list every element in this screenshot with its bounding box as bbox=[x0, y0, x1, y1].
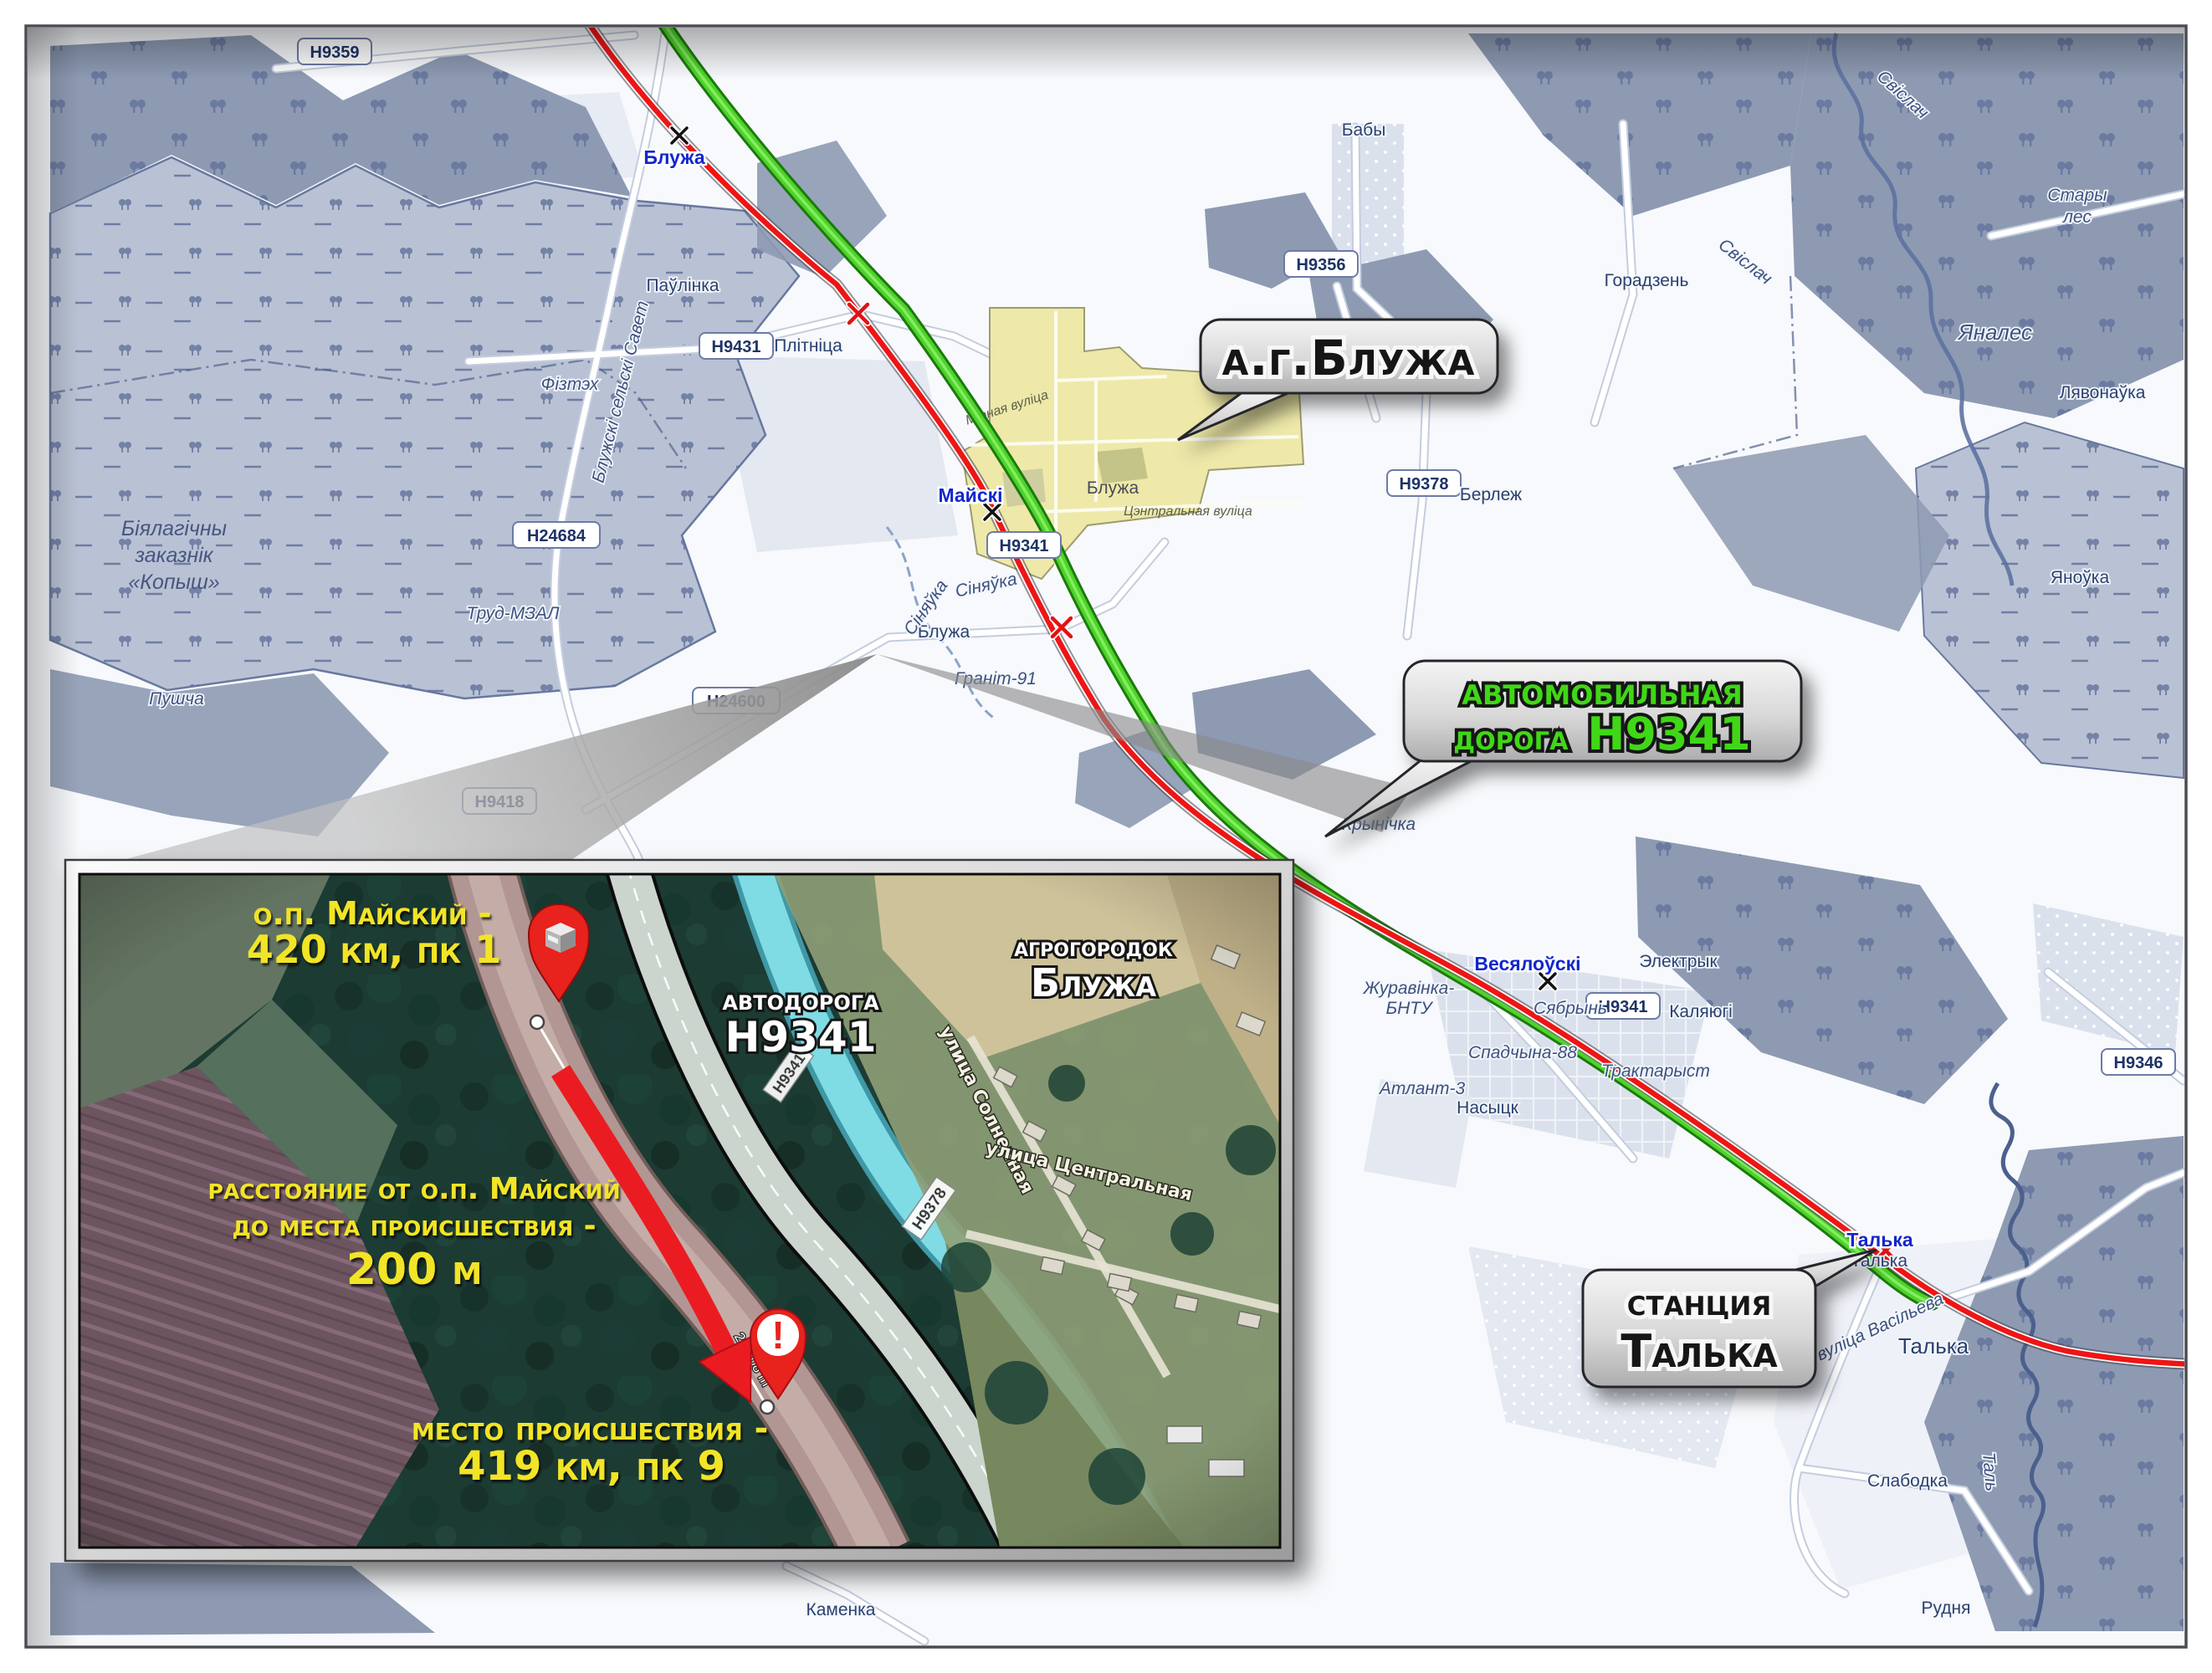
street-label-tsentralnaya: Цэнтральная вуліца bbox=[1124, 504, 1252, 519]
svg-text:Н24684: Н24684 bbox=[527, 527, 586, 545]
label-lyavonauka: Лявонаўка bbox=[2060, 383, 2146, 402]
label-paulinka: Паўлінка bbox=[646, 276, 719, 295]
svg-text:Н9378: Н9378 bbox=[1400, 475, 1449, 494]
label-zhuravinka-2: БНТУ bbox=[1385, 999, 1434, 1018]
svg-text:Н9341: Н9341 bbox=[1000, 537, 1049, 555]
label-bluzha-village: Блужа bbox=[918, 622, 970, 642]
label-stary-les-1: Стары bbox=[2047, 186, 2107, 205]
svg-text:заказнік: заказнік bbox=[134, 544, 213, 567]
label-spadchyna: Спадчына-88 bbox=[1468, 1043, 1577, 1062]
svg-text:Біялагічны: Біялагічны bbox=[121, 517, 227, 540]
map-screenshot: Мірная вуліца Блужа Цэнтральная вуліца Н… bbox=[0, 0, 2212, 1673]
river-label-tal: Таль bbox=[1979, 1451, 2001, 1492]
inset-satellite: 209.08 m Н9341 Н9378 улица Солнечная ули… bbox=[65, 860, 1293, 1561]
label-slabodka: Слабодка bbox=[1867, 1471, 1948, 1491]
label-kamenka: Каменка bbox=[806, 1600, 876, 1619]
callout-bluzha-text: а.г.Блужа bbox=[1222, 330, 1476, 386]
road-badge-h9356: Н9356 bbox=[1284, 251, 1358, 277]
label-berlezh: Берлеж bbox=[1460, 485, 1522, 504]
label-yanales: Яналес bbox=[1957, 320, 2032, 345]
label-syabryn: Сябрынь bbox=[1534, 999, 1607, 1018]
label-elektryk: Электрык bbox=[1639, 952, 1718, 971]
callout-station-line1: станция bbox=[1627, 1282, 1771, 1324]
road-badge-h24684: Н24684 bbox=[513, 522, 600, 548]
label-kalyugi: Каляюгі bbox=[1669, 1002, 1733, 1021]
station-label-bluzha: Блужа bbox=[643, 146, 704, 168]
label-nasytsk: Насыцк bbox=[1457, 1098, 1518, 1118]
label-bluzha-town: Блужа bbox=[1087, 478, 1139, 498]
label-atlant: Атлант-3 bbox=[1378, 1079, 1466, 1098]
station-label-vesialouski: Весялоўскі bbox=[1474, 953, 1580, 975]
label-rudnya: Рудня bbox=[1921, 1599, 1970, 1618]
label-goradzen: Горадзень bbox=[1605, 271, 1689, 290]
label-traktaryst: Трактарыст bbox=[1601, 1062, 1710, 1081]
svg-text:Н9356: Н9356 bbox=[1297, 256, 1346, 274]
label-pushcha: Пушча bbox=[149, 689, 204, 709]
svg-text:Н9431: Н9431 bbox=[712, 338, 761, 356]
label-stary-les-2: лес bbox=[2062, 207, 2092, 227]
svg-text:Н9346: Н9346 bbox=[2114, 1054, 2163, 1072]
station-label-maiski: Майскі bbox=[938, 484, 1002, 506]
label-yanouka: Яноўка bbox=[2051, 568, 2110, 587]
label-reserve-kopysh: Біялагічны заказнік «Копыш» bbox=[121, 517, 227, 594]
label-trud-mzal: Труд-МЗАЛ bbox=[467, 604, 561, 623]
label-fiztekh: Фізтэх bbox=[541, 375, 600, 394]
station-label-talka: Талька bbox=[1846, 1229, 1913, 1251]
road-badge-h9346: Н9346 bbox=[2102, 1049, 2175, 1075]
map-canvas: Мірная вуліца Блужа Цэнтральная вуліца Н… bbox=[0, 0, 2212, 1673]
road-badge-h9431: Н9431 bbox=[699, 333, 773, 359]
label-plitnica: Плітніца bbox=[774, 336, 842, 356]
label-zhuravinka-1: Журавінка- bbox=[1363, 979, 1455, 998]
callout-station-line2: Талька bbox=[1621, 1325, 1778, 1378]
marsh-kopysh bbox=[50, 157, 799, 698]
svg-text:«Копыш»: «Копыш» bbox=[128, 570, 219, 594]
label-baby: Бабы bbox=[1342, 120, 1386, 140]
road-badge-h9341-a: Н9341 bbox=[987, 532, 1061, 558]
label-talka-village: Талька bbox=[1898, 1333, 1969, 1358]
road-badge-h9378: Н9378 bbox=[1387, 470, 1461, 496]
